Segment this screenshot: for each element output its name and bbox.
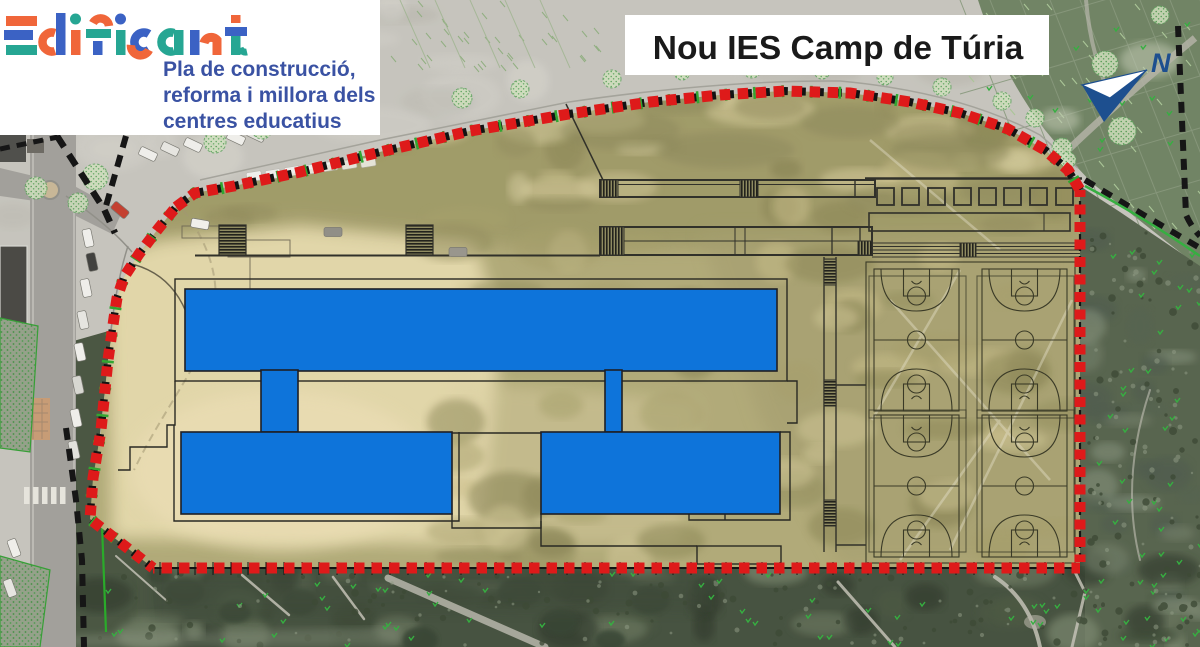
svg-text:reforma i millora dels: reforma i millora dels: [163, 84, 375, 107]
svg-text:N: N: [1151, 48, 1171, 78]
svg-text:Pla de construcció,: Pla de construcció,: [163, 58, 356, 81]
svg-text:Nou IES Camp de Túria: Nou IES Camp de Túria: [653, 30, 1024, 67]
svg-text:centres educatius: centres educatius: [163, 110, 342, 133]
